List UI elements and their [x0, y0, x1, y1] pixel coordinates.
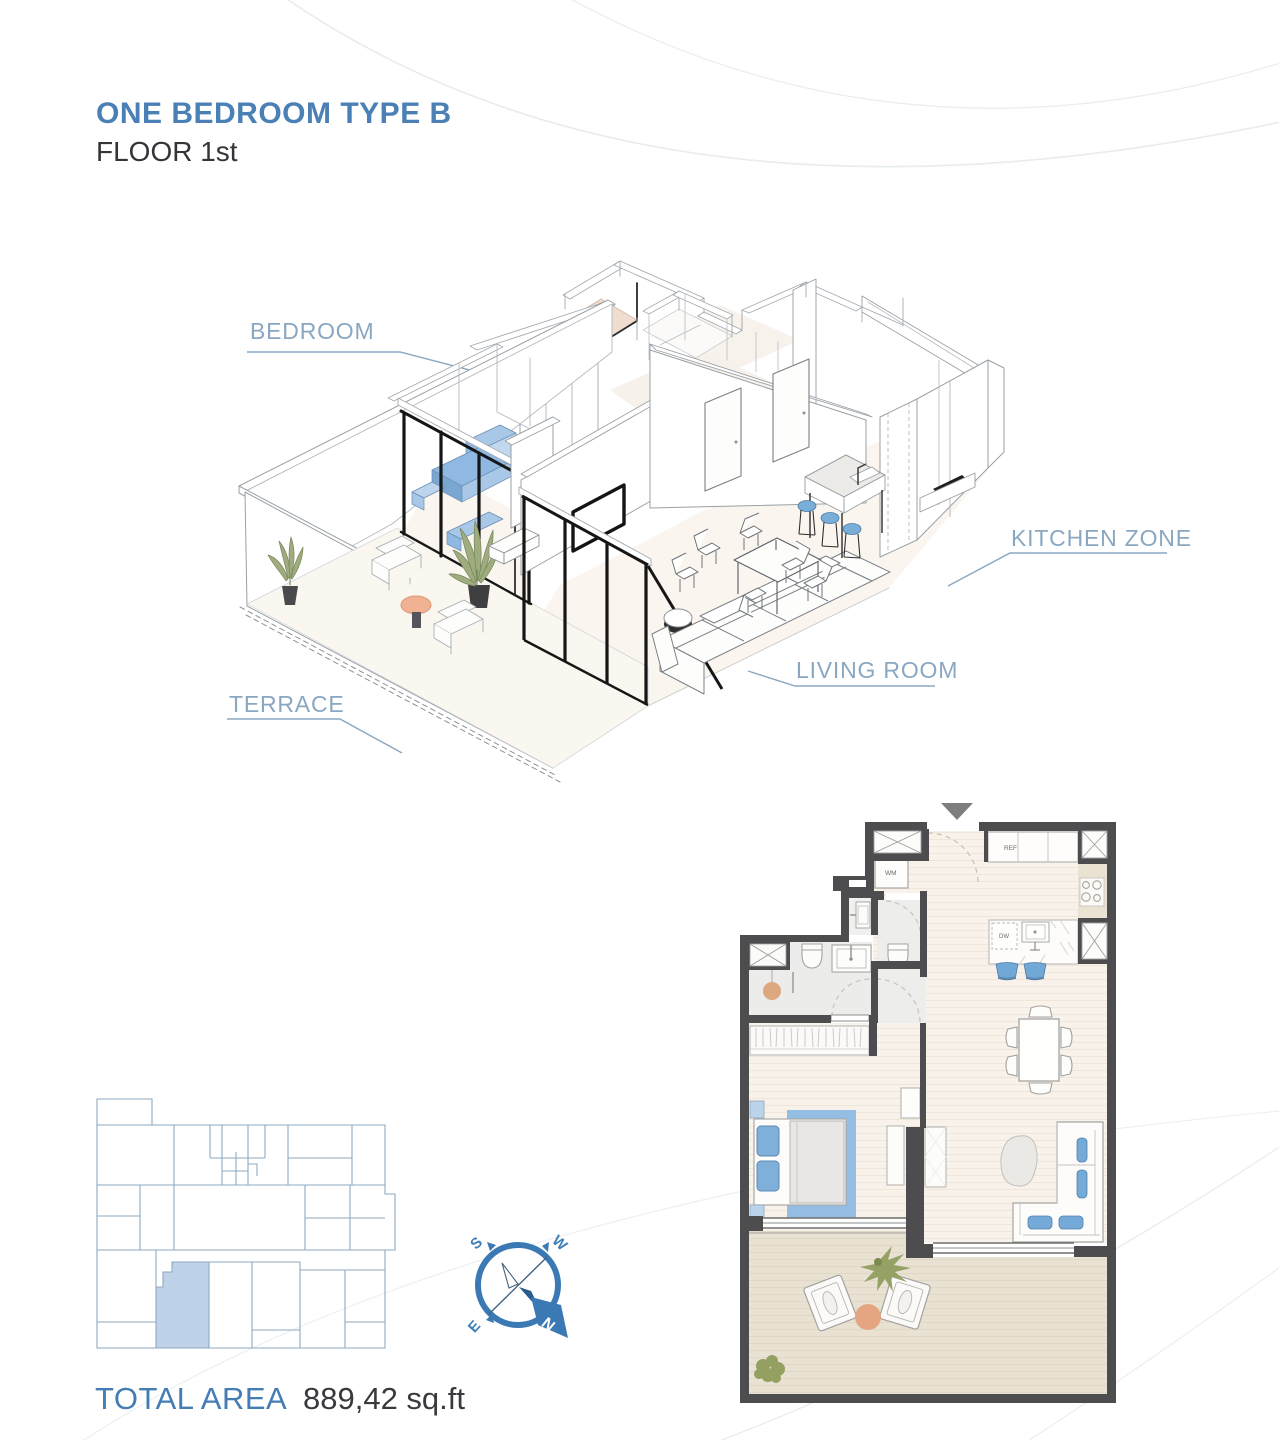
- svg-text:KITCHEN ZONE: KITCHEN ZONE: [1011, 525, 1192, 551]
- svg-text:BEDROOM: BEDROOM: [250, 318, 374, 344]
- svg-text:FLOOR 1st: FLOOR 1st: [96, 136, 238, 167]
- svg-text:889,42 sq.ft: 889,42 sq.ft: [303, 1381, 465, 1416]
- svg-text:DW: DW: [999, 934, 1009, 940]
- svg-text:ONE BEDROOM TYPE B: ONE BEDROOM TYPE B: [96, 97, 452, 130]
- svg-text:WM: WM: [885, 870, 897, 877]
- svg-text:TERRACE: TERRACE: [229, 691, 345, 717]
- svg-text:LIVING ROOM: LIVING ROOM: [796, 657, 958, 683]
- svg-text:TOTAL AREA: TOTAL AREA: [95, 1381, 287, 1416]
- svg-text:REF: REF: [1004, 845, 1017, 852]
